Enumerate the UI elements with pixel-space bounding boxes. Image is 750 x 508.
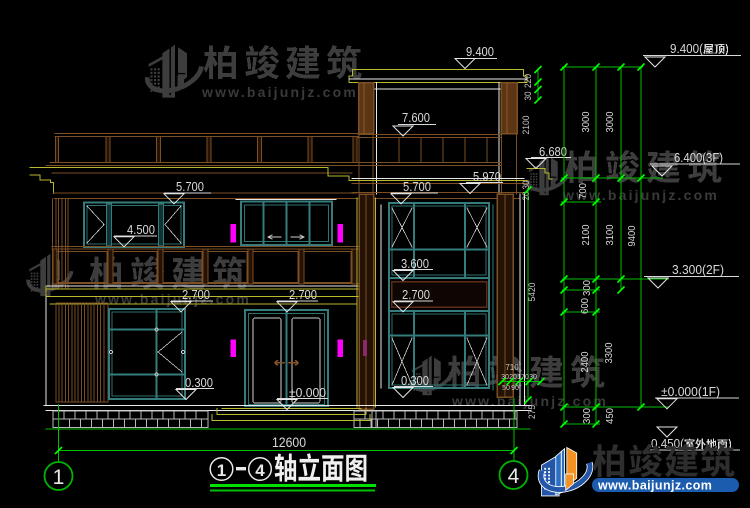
svg-text:50: 50 — [502, 385, 510, 392]
svg-text:2400: 2400 — [579, 351, 591, 372]
svg-text:2.700: 2.700 — [402, 287, 430, 302]
svg-text:20: 20 — [509, 374, 517, 381]
svg-text:3.600: 3.600 — [401, 256, 429, 271]
svg-text:5.700: 5.700 — [176, 179, 204, 194]
svg-text:710: 710 — [505, 363, 519, 372]
svg-text:5420: 5420 — [527, 283, 537, 302]
svg-text:5.700: 5.700 — [403, 179, 431, 194]
svg-text:3300: 3300 — [603, 342, 615, 363]
svg-text:300: 300 — [581, 408, 593, 424]
svg-text:30: 30 — [501, 374, 509, 381]
svg-text:30: 30 — [523, 92, 533, 101]
svg-text:9.400: 9.400 — [466, 44, 494, 59]
svg-text:9400: 9400 — [626, 225, 638, 246]
svg-text:6.680: 6.680 — [539, 144, 567, 159]
svg-text:www.baijunjz.com: www.baijunjz.com — [94, 291, 251, 307]
svg-text:2100: 2100 — [521, 116, 531, 135]
svg-text:4.500: 4.500 — [127, 222, 155, 237]
svg-text:3.300(2F): 3.300(2F) — [672, 262, 724, 277]
svg-text:1: 1 — [217, 461, 226, 480]
svg-text:4: 4 — [508, 465, 520, 488]
svg-text:9.400(: 9.400( — [670, 41, 704, 56]
svg-text:1: 1 — [53, 466, 65, 489]
svg-text:2.700: 2.700 — [182, 287, 210, 302]
svg-text:90: 90 — [511, 385, 519, 392]
svg-text:www.baijunjz.com: www.baijunjz.com — [597, 479, 712, 493]
svg-text:2100: 2100 — [580, 224, 592, 245]
svg-text:12600: 12600 — [272, 435, 306, 450]
svg-text:3000: 3000 — [580, 111, 592, 132]
svg-text:450: 450 — [604, 408, 616, 424]
svg-text:2.700: 2.700 — [289, 287, 317, 302]
svg-text:±0.000(1F): ±0.000(1F) — [661, 384, 720, 399]
svg-text:170: 170 — [517, 374, 529, 381]
svg-text:6.400(3F): 6.400(3F) — [674, 150, 723, 165]
svg-text:±0.000: ±0.000 — [289, 385, 326, 400]
svg-text:5.970: 5.970 — [473, 169, 501, 184]
svg-text:0.300: 0.300 — [185, 375, 213, 390]
svg-text:3100: 3100 — [604, 224, 616, 245]
svg-text:4: 4 — [255, 461, 265, 480]
svg-text:220: 220 — [523, 74, 533, 88]
svg-text:300: 300 — [581, 280, 593, 296]
svg-text:0.300: 0.300 — [401, 373, 429, 388]
svg-text:700: 700 — [577, 183, 589, 199]
svg-text:600: 600 — [579, 298, 591, 314]
svg-text:www.baijunjz.com: www.baijunjz.com — [201, 84, 358, 100]
svg-text:7.600: 7.600 — [402, 110, 430, 125]
svg-text:275: 275 — [527, 405, 537, 419]
svg-text:3000: 3000 — [604, 111, 616, 132]
